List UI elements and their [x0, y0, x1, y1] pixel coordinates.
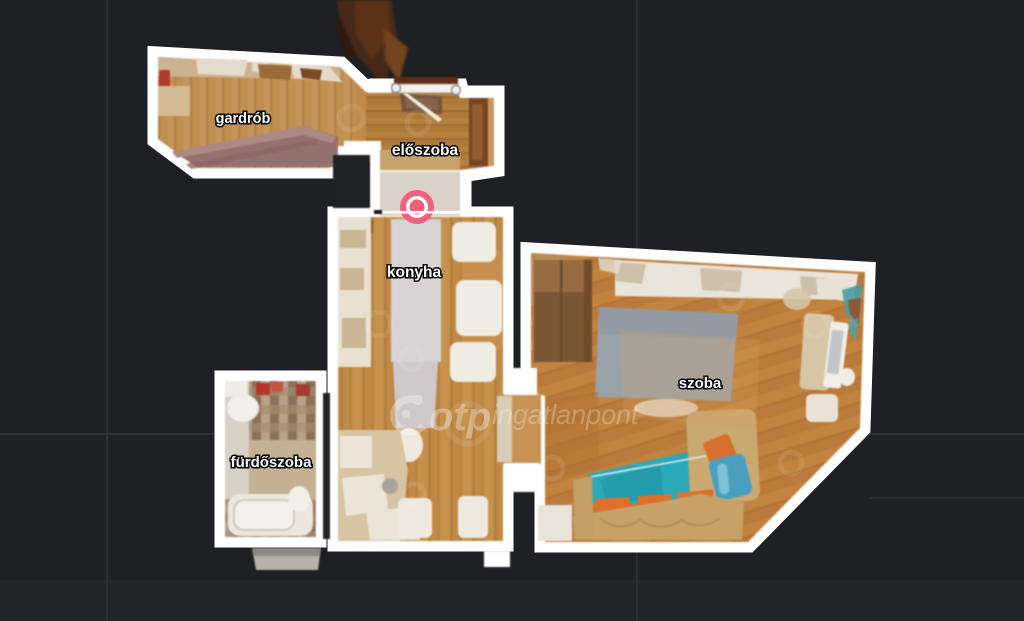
svg-text:otp: otp — [429, 395, 491, 439]
svg-text:ingatlanpont: ingatlanpont — [492, 399, 640, 430]
svg-text:előszoba: előszoba — [392, 142, 459, 159]
svg-text:fürdőszoba: fürdőszoba — [231, 454, 312, 471]
svg-text:konyha: konyha — [387, 264, 442, 281]
svg-text:szoba: szoba — [679, 375, 722, 392]
svg-text:gardrób: gardrób — [216, 111, 271, 127]
